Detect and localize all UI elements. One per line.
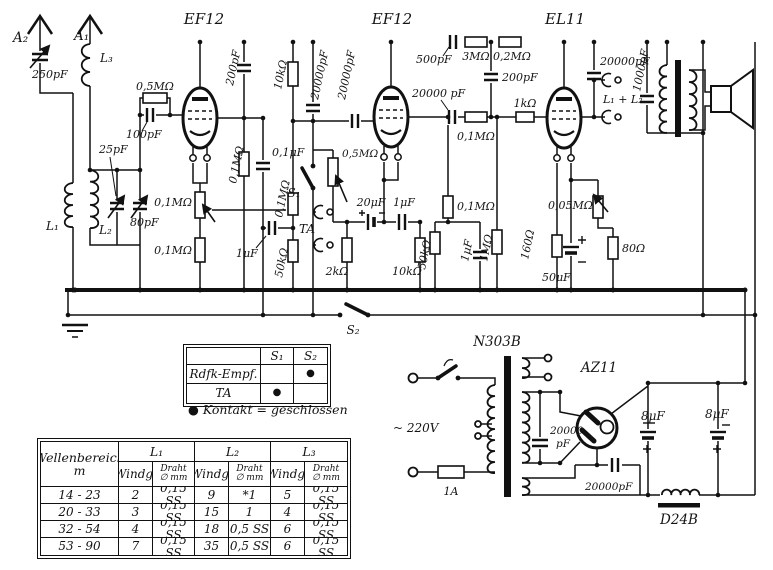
plus-50u (578, 236, 586, 244)
plus-20u (359, 210, 365, 216)
jack-l1l2-label: L₁ + L₂ (602, 93, 643, 106)
ct-row3-c1: 0,15 SS (153, 538, 195, 555)
resistor-3M-label: 3MΩ (462, 50, 489, 63)
st-row2-s1-dot: ● (261, 384, 294, 403)
radio-schematic-page: A₂ 250pF A₁ L₃ L₁ L₂ 25pF 80pF 0,5MΩ 100… (0, 0, 773, 570)
tube-ef12-2-label: EF12 (371, 10, 412, 28)
tube-az11-label: AZ11 (579, 360, 617, 376)
coil-l2-label: L₂ (98, 223, 112, 237)
antenna-a1-label: A₁ (72, 28, 89, 44)
coil-l3-label: L₃ (99, 51, 113, 65)
speaker-icon (711, 70, 753, 128)
ct-row2-c2: 18 (195, 521, 229, 538)
ct-sub-draht-1: Draht ∅ mm (153, 462, 195, 487)
arrow-pot-0.5M (336, 176, 347, 202)
cap-20000-b-label: 20000pF (335, 49, 358, 102)
resistor-160-label: 160Ω (518, 228, 537, 260)
ct-row2-c4: 6 (271, 521, 305, 538)
ct-group-l2: L₂ (195, 442, 271, 462)
ct-sub-draht-2: Draht ∅ mm (229, 462, 271, 487)
resistor-0.1M-b (195, 238, 205, 262)
resistor-80-label: 80Ω (622, 242, 645, 255)
cap-1u-c-label: 1μF (458, 238, 475, 262)
ct-sub-windg-3: Windg. (271, 462, 305, 487)
ct-row2-c0: 4 (119, 521, 153, 538)
st-col-s1: S₁ (261, 348, 294, 365)
pot-0.5M (328, 158, 338, 186)
ct-row0-c2: 9 (195, 487, 229, 504)
resistor-0.1M-d (443, 196, 453, 218)
ct-row1-c5: 0,15 SS (305, 504, 347, 521)
resistor-50k-a-label: 50kΩ (272, 247, 291, 279)
st-row2-s2 (294, 384, 327, 403)
resistor-80 (608, 237, 618, 259)
resistor-0.5M-label: 0,5MΩ (136, 80, 174, 93)
coil-l1-label: L₁ (45, 219, 59, 233)
ct-row3-c0: 7 (119, 538, 153, 555)
cap-20000-a-label: 20000pF (308, 49, 331, 102)
ct-row1-c2: 15 (195, 504, 229, 521)
leader-25p (110, 157, 116, 196)
ct-draht1-line2: ∅ mm (160, 474, 188, 483)
ct-row0-c5: 0,15 SS (305, 487, 347, 504)
ct-row3-c4: 6 (271, 538, 305, 555)
switch-mains-icon (438, 366, 456, 378)
primary-tap-1 (475, 421, 481, 427)
coil-output-primary (660, 65, 668, 133)
ct-row1-c0: 3 (119, 504, 153, 521)
pot-0.05M-label: 0,05MΩ (548, 199, 593, 212)
coil-sec-hv (522, 392, 530, 463)
cap-200p-b-label: 200pF (501, 71, 538, 84)
resistor-0.2M (499, 37, 521, 47)
coil-output-secondary (689, 70, 697, 130)
resistor-3M (465, 37, 487, 47)
primary-tap-2 (475, 433, 481, 439)
mains-voltage-label: ~ 220V (393, 421, 440, 435)
cap-250p-label: 250pF (31, 68, 68, 81)
pot-0.5M-label: 0,5MΩ (342, 148, 378, 160)
cap-8u-b-label: 8μF (705, 407, 729, 421)
ct-sub-draht-3: Draht ∅ mm (305, 462, 347, 487)
switch-state-table: S₁ S₂ Rdfk-Empf. ● TA ● (186, 347, 328, 404)
output-core-icon (675, 60, 681, 137)
ct-row3-c3: 0,5 SS (229, 538, 271, 555)
heater-terminal-2 (545, 374, 552, 381)
cap-500p-label: 500pF (416, 53, 452, 66)
ct-row0-c4: 5 (271, 487, 305, 504)
ct-row1-range: 20 - 33 (41, 504, 119, 521)
leader-20000c (441, 100, 448, 110)
ct-row1-c4: 4 (271, 504, 305, 521)
choke-core-icon (658, 503, 700, 508)
switch-mains-flick (444, 360, 453, 366)
transformer-label: N303B (472, 334, 521, 350)
cap-1u-a-label: 1μF (236, 247, 258, 260)
st-row2-label: TA (187, 384, 261, 403)
resistor-0.5M (143, 93, 167, 103)
plus-8u-a (643, 445, 651, 453)
ct-draht3-line2: ∅ mm (312, 474, 340, 483)
plus-8u-b (713, 445, 721, 453)
jack-ta-label: TA (299, 222, 315, 236)
resistor-0.1M-d-label: 0,1MΩ (457, 200, 495, 213)
ct-row2-range: 32 - 54 (41, 521, 119, 538)
resistor-2k-label: 2kΩ (325, 265, 349, 278)
ct-sub-windg-1: Windg. (119, 462, 153, 487)
cap-8u-a-label: 8μF (641, 409, 665, 423)
resistor-1k-label: 1kΩ (514, 97, 537, 110)
choke-d24b-label: D24B (659, 512, 698, 528)
switch-s1-label: S₁ (287, 186, 300, 200)
cap-20000-e-label-1: 20000 (549, 425, 584, 437)
ground-icon (62, 325, 88, 337)
heater-terminal-1 (545, 355, 552, 362)
cap-20000-e-label-2: pF (556, 438, 571, 450)
coil-l3 (82, 44, 90, 86)
cap-20000-c-label: 20000 pF (411, 87, 466, 100)
contact-legend: ● Kontakt = geschlossen (188, 402, 348, 417)
ct-draht2-line2: ∅ mm (236, 474, 264, 483)
ct-row2-c3: 0,5 SS (229, 521, 271, 538)
ct-row0-c0: 2 (119, 487, 153, 504)
st-corner (187, 348, 261, 365)
cap-50u-label: 50μF (542, 271, 571, 284)
fuse-symbol (438, 466, 464, 478)
tube-el11-label: EL11 (544, 10, 585, 28)
pot-0.1M-label: 0,1MΩ (154, 196, 192, 209)
coil-mains-primary (488, 385, 496, 473)
ct-row2-c5: 0,15 SS (305, 521, 347, 538)
ct-row0-c3: *1 (229, 487, 271, 504)
ct-row3-c2: 35 (195, 538, 229, 555)
switch-s2-label: S₂ (346, 323, 359, 337)
resistor-2k (342, 238, 352, 262)
ct-group-l3: L₃ (271, 442, 347, 462)
coil-l1 (65, 183, 73, 227)
resistor-10k-a (288, 62, 298, 86)
cap-0.1u-label: 0,1μF (272, 146, 305, 159)
coil-l2 (90, 170, 98, 228)
coil-sec-heater (522, 478, 530, 495)
resistor-0.1M-b-label: 0,1MΩ (154, 244, 192, 257)
tube-ef12-2-icon (374, 87, 408, 160)
ct-row1-c3: 1 (229, 504, 271, 521)
fuse-label: 1A (444, 485, 459, 498)
ct-row0-c1: 0,15 SS (153, 487, 195, 504)
resistor-0.2M-label: 0,2MΩ (493, 50, 531, 63)
st-row1-s2-dot: ● (294, 365, 327, 384)
st-row1-label: Rdfk-Empf. (187, 365, 261, 384)
resistor-160 (552, 235, 562, 257)
ct-header-wellenbereich: Wellenbereich m (41, 442, 119, 487)
antenna-icons (28, 16, 102, 34)
antenna-a2-label: A₂ (11, 30, 28, 46)
ct-row0-range: 14 - 23 (41, 487, 119, 504)
tube-ef12-1-label: EF12 (183, 10, 224, 28)
ct-group-l1: L₁ (119, 442, 195, 462)
coil-winding-table: Wellenbereich m L₁ L₂ L₃ Windg. Draht ∅ … (40, 441, 348, 556)
resistor-0.1M-e-label: 0,1MΩ (457, 130, 495, 143)
st-row1-s1 (261, 365, 294, 384)
coil-sec-top (522, 358, 530, 378)
ct-sub-windg-2: Windg. (195, 462, 229, 487)
mains-core-icon (504, 356, 511, 497)
ct-row2-c1: 0,15 SS (153, 521, 195, 538)
cap-1u-b-label: 1μF (393, 196, 415, 209)
cap-100p-label: 100pF (126, 128, 162, 141)
cap-20u-label: 20μF (356, 196, 386, 209)
resistor-1k (516, 112, 534, 122)
ct-row3-range: 53 - 90 (41, 538, 119, 555)
tube-ef12-1-icon (183, 88, 217, 161)
mains-terminal-1 (409, 374, 418, 383)
ct-row3-c5: 0,15 SS (305, 538, 347, 555)
cap-20000-f-label: 20000pF (584, 481, 633, 493)
ct-header-unit: m (74, 464, 86, 477)
mains-terminal-2 (409, 468, 418, 477)
resistor-0.1M-e (465, 112, 487, 122)
tube-el11-icon (547, 88, 581, 161)
cap-80p-label: 80pF (130, 216, 159, 229)
ct-row1-c1: 0,15 SS (153, 504, 195, 521)
cap-25p-label: 25pF (98, 143, 128, 156)
st-col-s2: S₂ (294, 348, 327, 365)
